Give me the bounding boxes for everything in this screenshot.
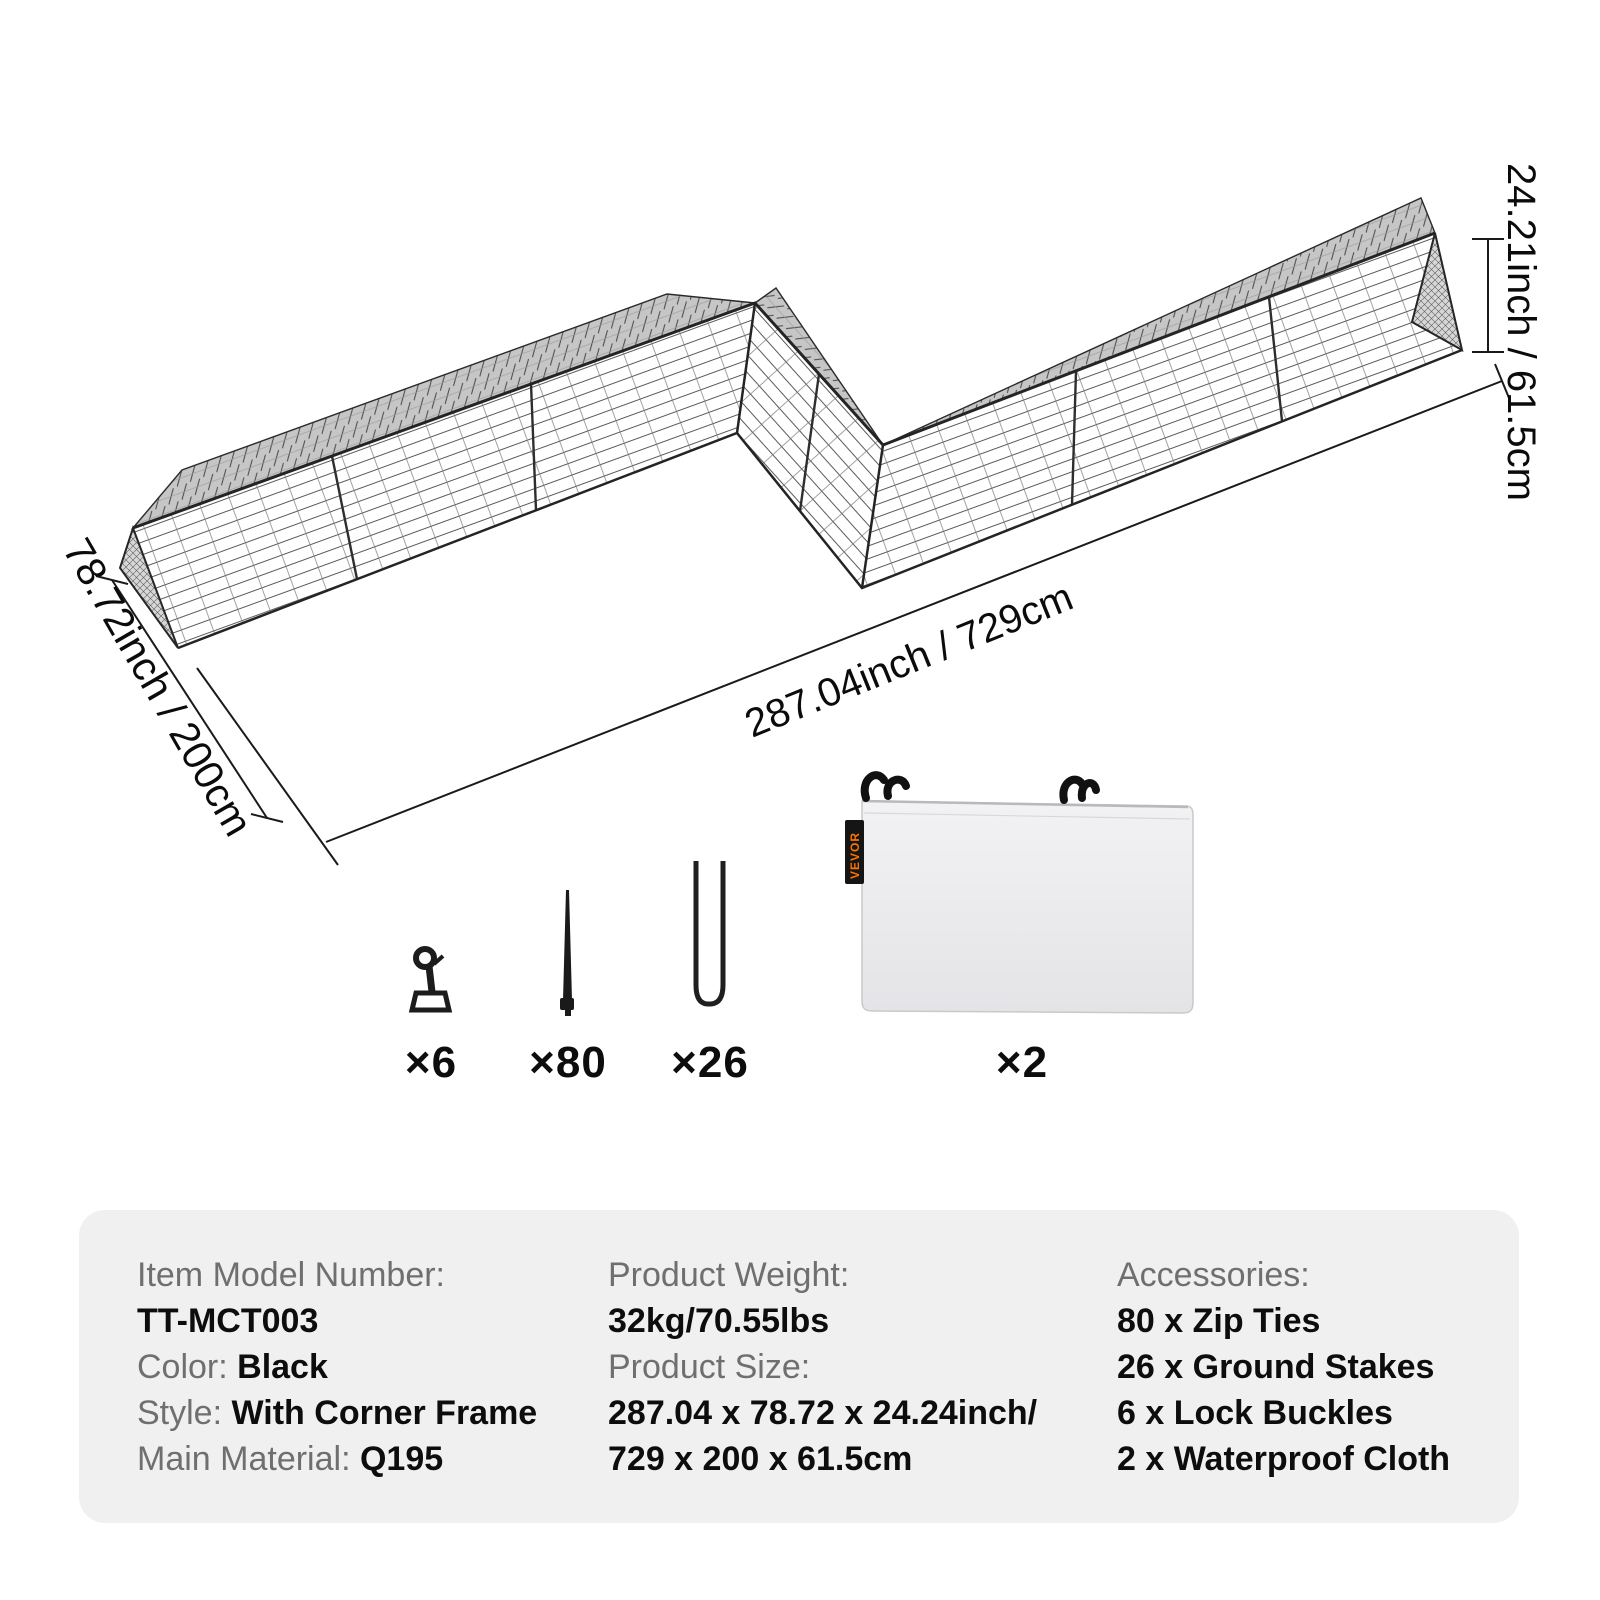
spec-line: TT-MCT003 xyxy=(137,1298,537,1344)
spec-line: Accessories: xyxy=(1117,1252,1450,1298)
spec-line: Product Size: xyxy=(608,1344,1037,1390)
spec-line: 287.04 x 78.72 x 24.24inch/ xyxy=(608,1390,1037,1436)
spec-line: Main Material: Q195 xyxy=(137,1436,537,1482)
brand-tag-label: VEVOR xyxy=(848,832,862,879)
zip-tie-count: ×80 xyxy=(529,1038,607,1088)
spec-line: 2 x Waterproof Cloth xyxy=(1117,1436,1450,1482)
wire-tunnel-drawing xyxy=(120,198,1462,648)
spec-line: 80 x Zip Ties xyxy=(1117,1298,1450,1344)
lock-buckle-icon xyxy=(412,949,449,1010)
height-dimension-label: 24.21inch / 61.5cm xyxy=(1499,163,1543,501)
waterproof-cloth-icon: VEVOR xyxy=(845,775,1193,1013)
bag-clips xyxy=(865,775,1096,800)
product-spec-image: 78.72inch / 200cm 287.04inch / 729cm 24.… xyxy=(0,0,1600,1600)
spec-line: Style: With Corner Frame xyxy=(137,1390,537,1436)
spec-line: 26 x Ground Stakes xyxy=(1117,1344,1450,1390)
spec-column-size: Product Weight: 32kg/70.55lbs Product Si… xyxy=(608,1252,1037,1482)
spec-line: 729 x 200 x 61.5cm xyxy=(608,1436,1037,1482)
spec-line: 32kg/70.55lbs xyxy=(608,1298,1037,1344)
ground-stake-icon xyxy=(696,861,723,1004)
spec-line: Item Model Number: xyxy=(137,1252,537,1298)
spec-line: Color: Black xyxy=(137,1344,537,1390)
tunnel-front-face-segment3 xyxy=(862,233,1462,588)
zip-tie-icon xyxy=(560,890,574,1016)
waterproof-cloth-count: ×2 xyxy=(996,1038,1048,1088)
spec-column-accessories: Accessories: 80 x Zip Ties 26 x Ground S… xyxy=(1117,1252,1450,1482)
spec-line: Product Weight: xyxy=(608,1252,1037,1298)
spec-column-model: Item Model Number: TT-MCT003 Color: Blac… xyxy=(137,1252,537,1482)
spec-line: 6 x Lock Buckles xyxy=(1117,1390,1450,1436)
spec-panel: Item Model Number: TT-MCT003 Color: Blac… xyxy=(79,1210,1519,1523)
lock-buckle-count: ×6 xyxy=(405,1038,457,1088)
ground-stake-count: ×26 xyxy=(671,1038,749,1088)
